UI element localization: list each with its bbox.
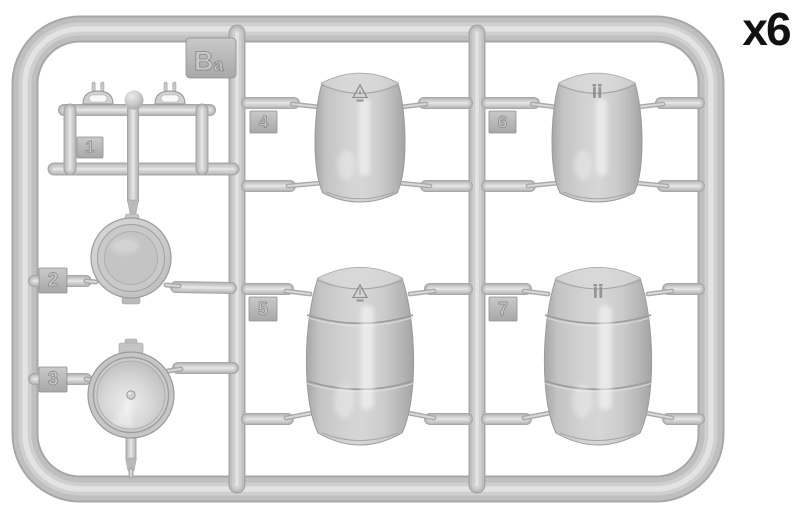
part-4-barrel-half (315, 73, 405, 202)
part-5-barrel (306, 268, 413, 446)
gate-pin (292, 104, 319, 107)
part-number-tab-7: 7 (489, 297, 517, 321)
gate-pin (86, 281, 96, 282)
svg-text:1: 1 (86, 139, 95, 156)
part-6-barrel-half (552, 73, 642, 202)
sprue-letter-tag: Ba (186, 38, 236, 78)
gate-pin (410, 291, 434, 294)
part-3-lid (34, 339, 233, 476)
gate-pin (286, 291, 310, 294)
gate-pin (399, 183, 430, 186)
quantity-label: x6 (732, 2, 800, 56)
svg-text:2: 2 (48, 270, 59, 291)
barrel-handle (155, 82, 185, 104)
part-number-tab-3: 3 (39, 367, 67, 392)
barrel-handle (83, 82, 113, 104)
sprue-diagram: 1234567Ba x6 (0, 0, 800, 521)
sprue-illustration: 1234567Ba (0, 0, 800, 521)
svg-text:7: 7 (498, 299, 508, 319)
gate-pin (638, 104, 663, 107)
svg-text:5: 5 (258, 299, 268, 319)
part-number-tab-1: 1 (77, 137, 103, 158)
gate-pin (532, 104, 556, 107)
part-number-tab-4: 4 (250, 111, 277, 133)
gate-pin (528, 183, 558, 186)
part-number-tab-6: 6 (489, 111, 516, 133)
gate-pin (401, 104, 426, 107)
svg-text:4: 4 (259, 113, 269, 132)
runner-right (176, 287, 231, 288)
gate-pin (168, 369, 181, 371)
gate-pin (166, 285, 179, 286)
part-7-barrel (544, 268, 651, 446)
lid-center-plug (127, 391, 135, 399)
gate-pin (524, 291, 548, 294)
svg-text:6: 6 (498, 113, 507, 132)
svg-text:3: 3 (48, 369, 59, 390)
gate-pin (288, 183, 321, 186)
gate-pin (636, 183, 667, 186)
part-number-tab-2: 2 (39, 268, 67, 293)
sprue-ball (125, 91, 144, 110)
gate-pin (648, 291, 672, 294)
part-number-tab-5: 5 (249, 297, 277, 321)
